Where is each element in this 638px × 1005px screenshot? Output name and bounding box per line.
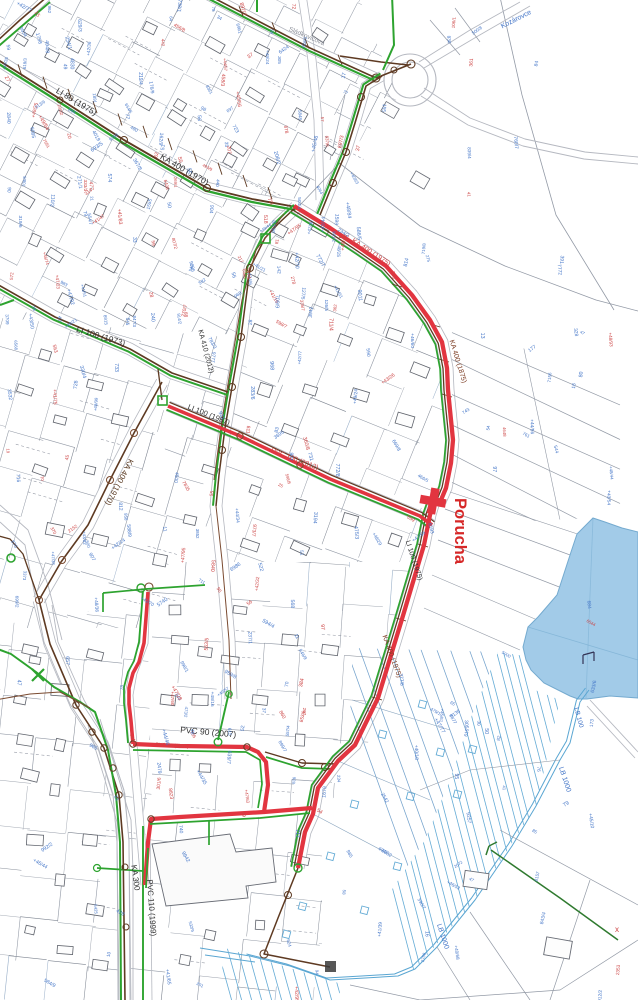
svg-text:458/3: 458/3 bbox=[219, 73, 226, 86]
svg-text:+46/60: +46/60 bbox=[409, 333, 415, 348]
svg-text:305: 305 bbox=[277, 56, 282, 64]
svg-text:37: 37 bbox=[262, 708, 267, 714]
svg-text:70: 70 bbox=[284, 681, 290, 687]
svg-text:48: 48 bbox=[189, 729, 195, 735]
svg-text:951/8: 951/8 bbox=[271, 220, 278, 233]
svg-text:56: 56 bbox=[196, 115, 202, 121]
svg-text:716: 716 bbox=[15, 474, 21, 483]
svg-text:64: 64 bbox=[169, 16, 174, 21]
svg-text:269/1: 269/1 bbox=[173, 177, 178, 188]
svg-text:362: 362 bbox=[332, 303, 338, 311]
svg-text:711/4: 711/4 bbox=[327, 318, 333, 331]
svg-text:1679: 1679 bbox=[321, 786, 328, 798]
svg-text:x: x bbox=[615, 925, 619, 934]
svg-text:968: 968 bbox=[268, 361, 274, 370]
svg-text:5425: 5425 bbox=[93, 904, 99, 915]
svg-text:20: 20 bbox=[65, 133, 72, 139]
svg-text:568: 568 bbox=[289, 599, 295, 608]
svg-text:6568: 6568 bbox=[13, 340, 18, 350]
svg-text:717: 717 bbox=[294, 829, 300, 838]
svg-text:5848: 5848 bbox=[297, 110, 302, 121]
svg-text:973/7: 973/7 bbox=[250, 524, 257, 537]
svg-text:173: 173 bbox=[589, 719, 596, 728]
svg-text:328: 328 bbox=[572, 328, 579, 337]
svg-text:733: 733 bbox=[113, 363, 119, 372]
svg-text:2479: 2479 bbox=[155, 762, 162, 774]
svg-text:557/4: 557/4 bbox=[285, 725, 291, 737]
svg-text:4648: 4648 bbox=[502, 427, 507, 437]
svg-text:684: 684 bbox=[585, 600, 592, 609]
svg-text:912/2: 912/2 bbox=[597, 989, 604, 1000]
svg-text:301/6: 301/6 bbox=[156, 777, 163, 790]
svg-text:35: 35 bbox=[223, 142, 229, 148]
svg-text:333/3: 333/3 bbox=[83, 180, 88, 192]
svg-text:28: 28 bbox=[248, 319, 254, 325]
svg-text:16: 16 bbox=[571, 383, 577, 389]
svg-text:7156: 7156 bbox=[547, 372, 553, 383]
svg-text:127/5: 127/5 bbox=[299, 287, 306, 300]
svg-text:90: 90 bbox=[5, 187, 11, 193]
svg-text:50: 50 bbox=[166, 202, 172, 208]
svg-text:772/8: 772/8 bbox=[334, 464, 340, 477]
svg-text:59: 59 bbox=[151, 240, 156, 246]
svg-text:545: 545 bbox=[125, 317, 131, 326]
svg-text:719/8: 719/8 bbox=[421, 243, 427, 255]
svg-text:305: 305 bbox=[463, 720, 469, 729]
svg-text:19: 19 bbox=[6, 448, 11, 454]
svg-text:77: 77 bbox=[124, 113, 131, 120]
svg-text:615: 615 bbox=[227, 728, 232, 736]
svg-text:728: 728 bbox=[73, 380, 80, 389]
svg-text:162/9: 162/9 bbox=[157, 132, 164, 145]
svg-text:+47/38: +47/38 bbox=[50, 551, 55, 565]
svg-text:Porucha: Porucha bbox=[451, 498, 469, 565]
svg-text:108: 108 bbox=[289, 452, 296, 461]
svg-text:738/1: 738/1 bbox=[176, 0, 183, 13]
svg-text:237/1: 237/1 bbox=[246, 631, 252, 644]
svg-text:78: 78 bbox=[211, 7, 216, 12]
svg-text:+42/99: +42/99 bbox=[293, 986, 300, 1000]
svg-text:708/6: 708/6 bbox=[21, 175, 27, 187]
svg-text:4830: 4830 bbox=[68, 58, 74, 69]
svg-text:94: 94 bbox=[315, 970, 320, 975]
svg-text:440: 440 bbox=[215, 179, 221, 187]
svg-text:41: 41 bbox=[502, 785, 507, 791]
svg-text:3852: 3852 bbox=[195, 529, 200, 539]
svg-text:504/4: 504/4 bbox=[297, 197, 302, 209]
svg-text:9777: 9777 bbox=[209, 352, 216, 363]
svg-text:+41/75: +41/75 bbox=[51, 389, 58, 405]
svg-text:962: 962 bbox=[47, 5, 52, 13]
svg-text:3373: 3373 bbox=[22, 571, 28, 582]
svg-text:574: 574 bbox=[106, 173, 112, 182]
svg-text:110/2: 110/2 bbox=[48, 194, 55, 207]
svg-text:928: 928 bbox=[291, 777, 297, 785]
svg-text:1599: 1599 bbox=[333, 213, 340, 225]
svg-text:3942: 3942 bbox=[308, 306, 315, 317]
svg-text:13: 13 bbox=[479, 333, 485, 339]
svg-text:33: 33 bbox=[131, 237, 137, 243]
svg-text:+48/16: +48/16 bbox=[209, 692, 215, 707]
svg-text:588/9: 588/9 bbox=[125, 524, 132, 537]
svg-text:3194: 3194 bbox=[311, 512, 318, 524]
svg-text:981/2: 981/2 bbox=[331, 231, 336, 243]
svg-text:2353: 2353 bbox=[615, 964, 621, 975]
svg-text:72: 72 bbox=[290, 4, 296, 10]
svg-text:839/4: 839/4 bbox=[467, 147, 472, 159]
svg-text:+43/54: +43/54 bbox=[605, 490, 611, 505]
svg-text:494/8: 494/8 bbox=[43, 40, 49, 53]
svg-text:361: 361 bbox=[468, 58, 475, 67]
svg-text:126/5: 126/5 bbox=[324, 299, 329, 311]
svg-text:142: 142 bbox=[275, 266, 281, 275]
svg-text:7772: 7772 bbox=[556, 264, 563, 276]
svg-text:9011: 9011 bbox=[356, 289, 363, 301]
svg-text:11: 11 bbox=[161, 526, 168, 532]
svg-text:47: 47 bbox=[16, 680, 22, 686]
svg-text:657: 657 bbox=[64, 656, 70, 665]
svg-text:97: 97 bbox=[491, 466, 497, 472]
svg-text:57: 57 bbox=[320, 117, 325, 123]
svg-text:475/3: 475/3 bbox=[352, 526, 359, 540]
svg-text:878: 878 bbox=[282, 125, 289, 134]
svg-text:28: 28 bbox=[147, 291, 154, 298]
svg-text:5840: 5840 bbox=[209, 560, 216, 572]
svg-text:47: 47 bbox=[56, 316, 62, 322]
svg-text:30: 30 bbox=[476, 720, 481, 726]
svg-text:629/3: 629/3 bbox=[76, 19, 82, 32]
svg-text:709/9: 709/9 bbox=[273, 295, 279, 308]
svg-text:590: 590 bbox=[365, 348, 372, 357]
svg-text:811: 811 bbox=[244, 425, 251, 434]
svg-text:+40/18: +40/18 bbox=[413, 745, 420, 761]
svg-text:+49/24: +49/24 bbox=[265, 50, 270, 65]
svg-text:106/1: 106/1 bbox=[451, 16, 457, 28]
svg-text:699/2: 699/2 bbox=[14, 596, 20, 608]
svg-text:49: 49 bbox=[62, 64, 68, 70]
svg-text:958: 958 bbox=[123, 513, 128, 521]
svg-text:240: 240 bbox=[149, 313, 156, 322]
svg-text:155: 155 bbox=[380, 103, 387, 112]
svg-text:740: 740 bbox=[177, 825, 184, 834]
svg-text:377/8: 377/8 bbox=[397, 673, 404, 686]
svg-text:80: 80 bbox=[578, 371, 584, 377]
svg-text:283/6: 283/6 bbox=[249, 386, 255, 399]
svg-text:+42/70: +42/70 bbox=[293, 252, 300, 269]
svg-text:52: 52 bbox=[240, 725, 246, 731]
svg-text:639/7: 639/7 bbox=[225, 750, 232, 764]
svg-text:572: 572 bbox=[9, 272, 15, 280]
svg-text:760/7: 760/7 bbox=[512, 136, 519, 149]
svg-text:442: 442 bbox=[161, 39, 166, 47]
svg-text:2840: 2840 bbox=[5, 112, 11, 124]
svg-text:3709: 3709 bbox=[5, 314, 10, 325]
svg-text:473/2: 473/2 bbox=[183, 706, 189, 718]
svg-text:17: 17 bbox=[341, 72, 348, 79]
svg-text:637/6: 637/6 bbox=[324, 136, 329, 148]
svg-text:50: 50 bbox=[483, 728, 489, 734]
svg-text:847/3: 847/3 bbox=[132, 315, 137, 327]
svg-text:904: 904 bbox=[208, 205, 215, 214]
svg-text:4500: 4500 bbox=[173, 472, 180, 483]
svg-text:812: 812 bbox=[117, 502, 123, 511]
svg-text:59: 59 bbox=[5, 44, 11, 50]
svg-text:586/5: 586/5 bbox=[355, 227, 362, 241]
svg-text:97: 97 bbox=[319, 624, 326, 631]
svg-text:234: 234 bbox=[336, 775, 341, 783]
svg-text:219/4: 219/4 bbox=[137, 72, 143, 85]
svg-text:+47/60: +47/60 bbox=[170, 691, 175, 705]
svg-text:1891: 1891 bbox=[92, 93, 98, 104]
svg-text:16: 16 bbox=[424, 931, 430, 937]
svg-text:55: 55 bbox=[185, 168, 191, 174]
svg-text:95: 95 bbox=[453, 774, 459, 780]
svg-text:830: 830 bbox=[446, 35, 452, 44]
svg-text:563/5: 563/5 bbox=[203, 637, 210, 650]
svg-text:618/3: 618/3 bbox=[22, 57, 28, 69]
svg-text:76: 76 bbox=[535, 766, 541, 772]
svg-text:+44/56: +44/56 bbox=[528, 419, 535, 435]
svg-text:319/6: 319/6 bbox=[17, 215, 23, 227]
